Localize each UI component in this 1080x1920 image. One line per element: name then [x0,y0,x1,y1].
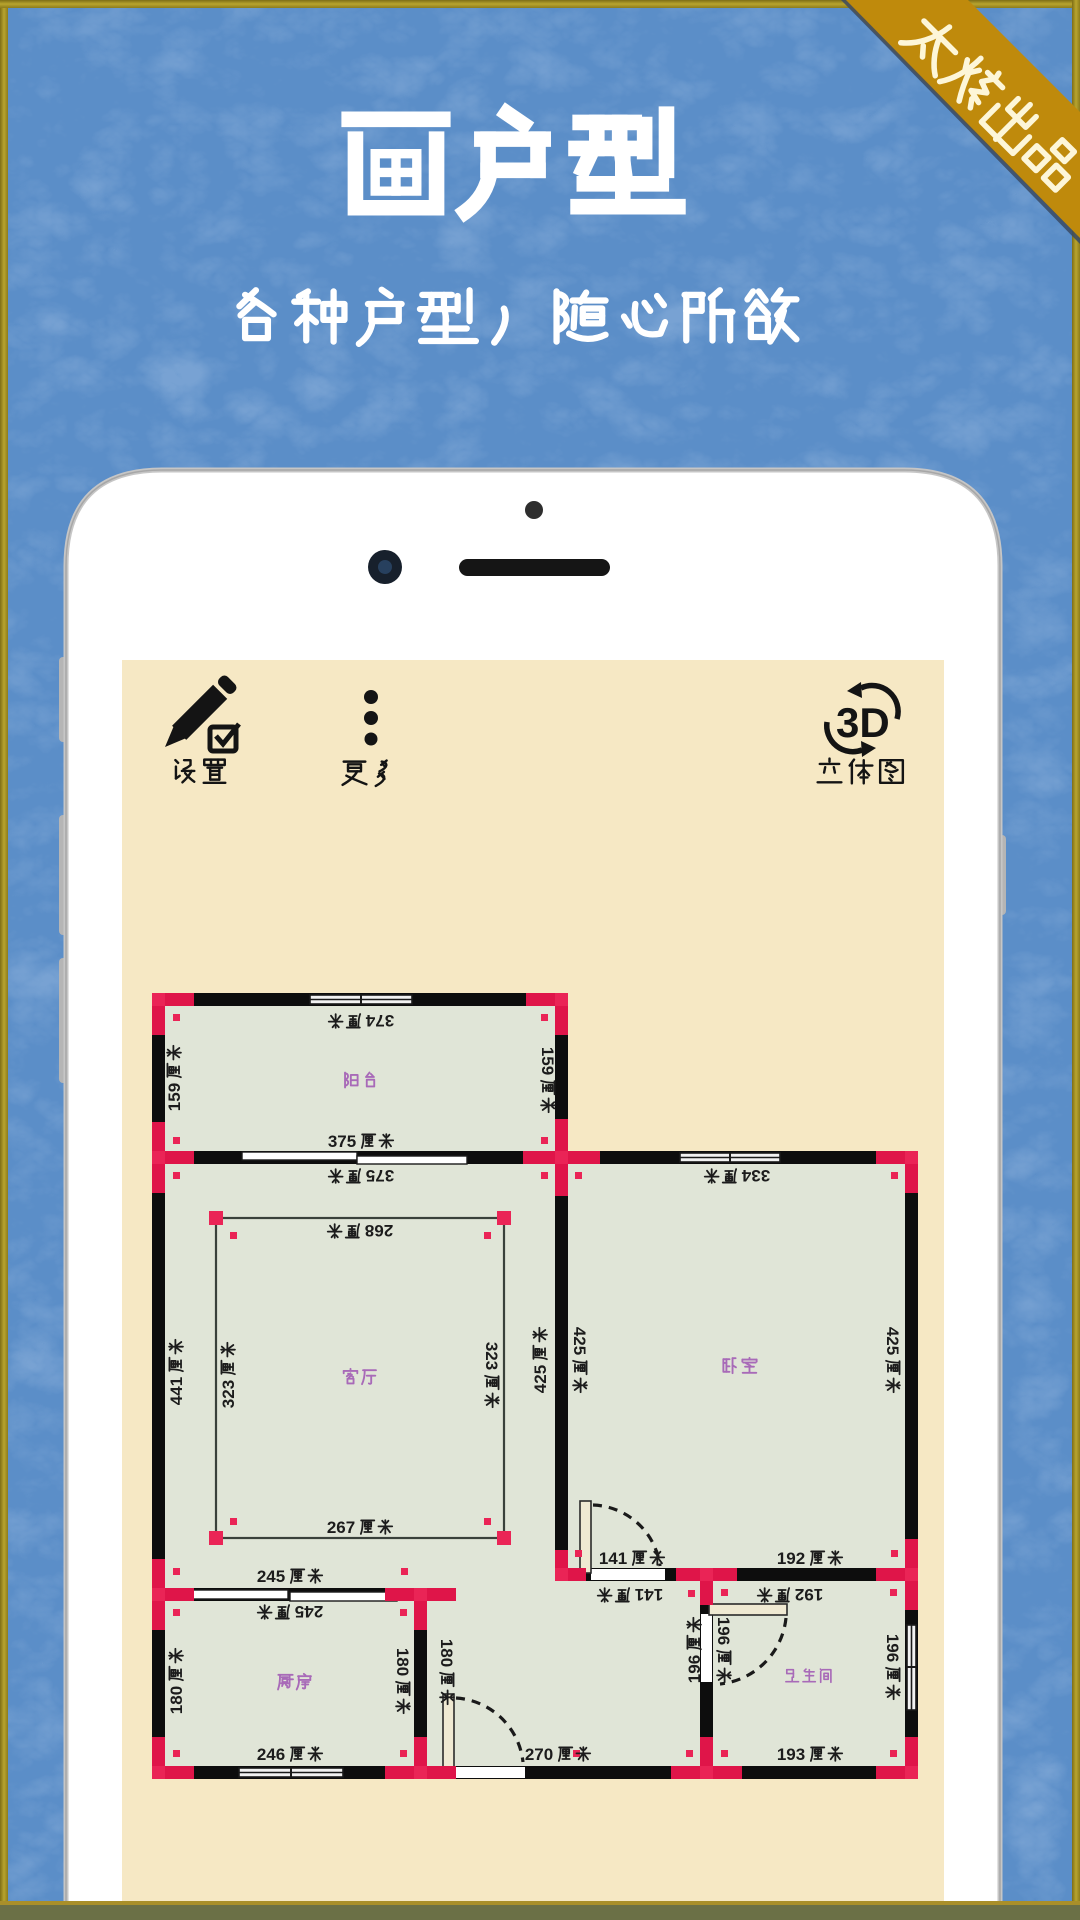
svg-text:141: 141 [599,1549,627,1568]
svg-text:323: 323 [482,1342,501,1370]
svg-text:267: 267 [327,1518,355,1537]
svg-text:425: 425 [570,1327,589,1355]
svg-text:425: 425 [531,1365,550,1393]
svg-text:192: 192 [795,1585,823,1604]
svg-text:180: 180 [393,1648,412,1676]
svg-text:334: 334 [741,1166,770,1185]
svg-text:268: 268 [365,1221,393,1240]
svg-text:375: 375 [366,1166,394,1185]
svg-text:246: 246 [257,1745,285,1764]
svg-text:245: 245 [295,1602,323,1621]
svg-text:159: 159 [538,1047,557,1075]
svg-text:375: 375 [328,1132,356,1151]
svg-text:196: 196 [714,1617,733,1645]
svg-text:192: 192 [777,1549,805,1568]
svg-text:270: 270 [525,1745,553,1764]
svg-text:374: 374 [365,1011,394,1030]
svg-text:193: 193 [777,1745,805,1764]
svg-text:3D: 3D [836,699,890,746]
svg-text:245: 245 [257,1567,285,1586]
svg-text:180: 180 [437,1639,456,1667]
svg-text:323: 323 [219,1380,238,1408]
svg-text:141: 141 [635,1585,663,1604]
svg-text:180: 180 [167,1686,186,1714]
svg-text:441: 441 [167,1377,186,1405]
svg-text:196: 196 [883,1634,902,1662]
svg-text:425: 425 [883,1327,902,1355]
svg-text:196: 196 [685,1655,704,1683]
svg-text:159: 159 [165,1083,184,1111]
